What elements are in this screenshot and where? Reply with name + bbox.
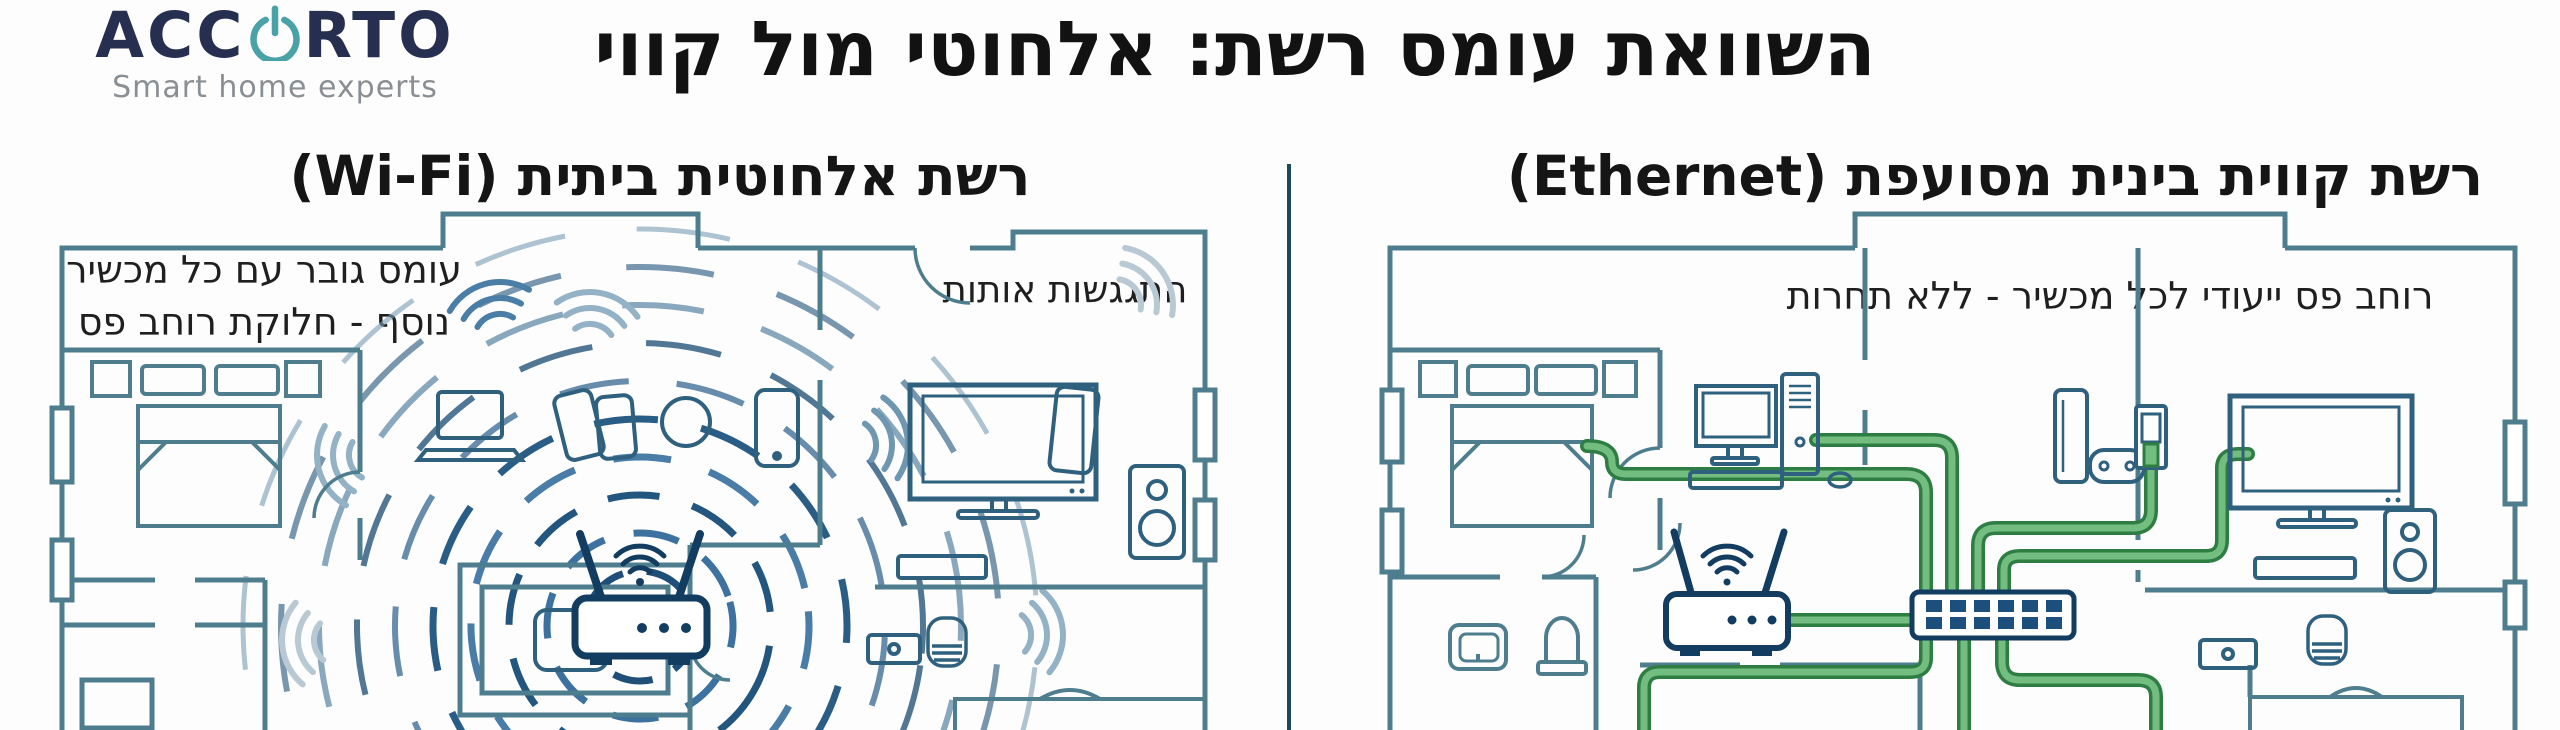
speaker-icon <box>1130 466 1184 558</box>
tv-icon <box>2230 396 2412 527</box>
wifi-panel-heading: רשת אלחוטית ביתית (Wi-Fi) <box>240 144 1080 208</box>
ethernet-panel-heading: רשת קווית בינית מסועפת (Ethernet) <box>1470 144 2520 208</box>
wifi-router-icon <box>1666 532 1788 656</box>
smart-speaker-icon <box>2308 616 2346 664</box>
infographic-canvas: ACC RTO Smart home experts השוואת עומס ר… <box>0 0 2560 730</box>
power-icon <box>247 5 303 61</box>
page-title: השוואת עומס רשת: אלחוטי מול קווי <box>560 4 1910 93</box>
tv-icon <box>910 385 1096 518</box>
tv-cabinet <box>2250 688 2462 730</box>
wifi-router-icon <box>575 534 707 665</box>
ethernet-wall-jack <box>2136 406 2166 468</box>
speaker-icon <box>2385 510 2435 592</box>
ethernet-floorplan <box>1300 210 2540 730</box>
logo-text-pre: ACC <box>95 4 245 67</box>
wifi-floorplan <box>30 210 1270 730</box>
smartphones-icons <box>553 386 1100 474</box>
brand-tagline: Smart home experts <box>52 70 498 105</box>
brand-logo-row: ACC RTO <box>52 4 498 67</box>
brand-logo: ACC RTO Smart home experts <box>52 4 498 105</box>
game-console-icon <box>2055 390 2144 482</box>
ethernet-switch-icon <box>1912 592 2074 638</box>
logo-text-post: RTO <box>304 4 455 67</box>
bathroom-fixtures <box>1450 618 1586 674</box>
panel-divider <box>1287 164 1291 730</box>
